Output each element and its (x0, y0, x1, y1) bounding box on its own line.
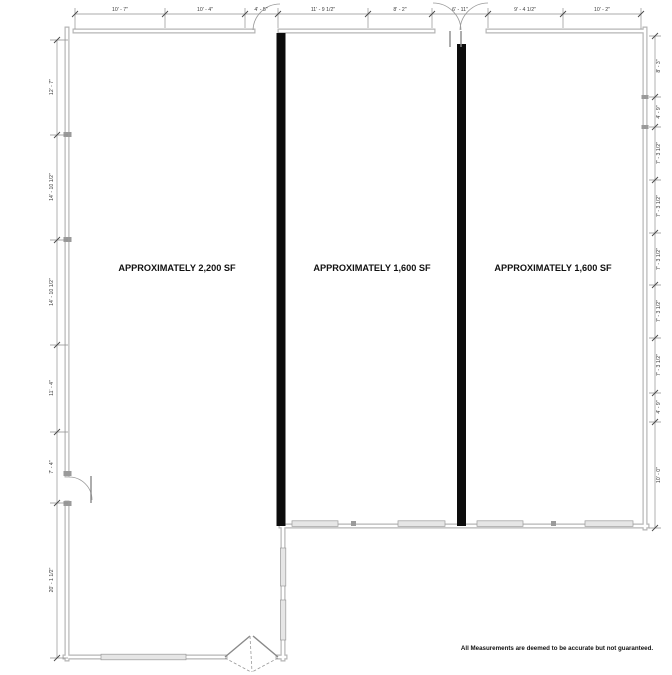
dimension-label: 8' - 3" (656, 59, 662, 72)
dimension-label: 4' - 9" (656, 105, 662, 118)
window (292, 521, 338, 527)
dimension-label: 20' - 1 1/2" (49, 567, 55, 592)
wall-mark (64, 132, 72, 137)
dimension-label: 8' - 2" (393, 7, 406, 13)
dimension-label: 7' - 3 1/2" (656, 195, 662, 217)
unit-labels: APPROXIMATELY 2,200 SF APPROXIMATELY 1,6… (118, 263, 612, 273)
dimension-label: 11' - 9 1/2" (311, 7, 336, 13)
dimension-labels-top: 10' - 7" 10' - 4" 4' - 5" 11' - 9 1/2" 8… (112, 7, 610, 13)
wall-mark (551, 521, 556, 526)
wall-mark (642, 95, 649, 99)
floorplan: 10' - 7" 10' - 4" 4' - 5" 11' - 9 1/2" 8… (0, 0, 672, 675)
window (280, 548, 285, 586)
dimension-label: 7' - 3 1/2" (656, 248, 662, 270)
unit-label-1600sf-middle: APPROXIMATELY 1,600 SF (313, 263, 431, 273)
dimension-label: 7' - 3 1/2" (656, 354, 662, 376)
dimension-label: 4' - 5" (254, 7, 267, 13)
window (477, 521, 523, 527)
dimension-label: 10' - 4" (197, 7, 213, 13)
window (398, 521, 445, 527)
unit-label-1600sf-right: APPROXIMATELY 1,600 SF (494, 263, 612, 273)
wall-mark (642, 125, 649, 129)
disclaimer-text: All Measurements are deemed to be accura… (461, 645, 653, 652)
dimension-label: 14' - 10 1/2" (49, 173, 55, 201)
wall-mark (64, 237, 72, 242)
dimension-labels-left: 12' - 7" 14' - 10 1/2" 14' - 10 1/2" 11'… (49, 79, 55, 593)
door-leaf (225, 636, 278, 657)
exterior-walls (65, 29, 647, 659)
unit-label-2200sf: APPROXIMATELY 2,200 SF (118, 263, 236, 273)
wall-mark (64, 501, 72, 506)
dimension-label: 7' - 3 1/2" (656, 300, 662, 322)
windows (64, 95, 649, 660)
demising-walls (277, 33, 467, 526)
dimension-label: 10' - 7" (112, 7, 128, 13)
dimension-label: 10' - 2" (594, 7, 610, 13)
dimension-label: 11' - 4" (49, 380, 55, 396)
dimension-label: 7' - 4" (49, 460, 55, 473)
dimension-label: 7' - 3 1/2" (656, 142, 662, 164)
wall-mark (64, 471, 72, 476)
window (585, 521, 633, 527)
dimension-label: 10' - 0" (656, 467, 662, 483)
dimension-label: 6' - 11" (452, 7, 468, 13)
demising-wall (457, 44, 466, 526)
window (280, 600, 285, 640)
dimension-label: 14' - 10 1/2" (49, 278, 55, 306)
dimension-lines (50, 8, 661, 661)
door-swing-arc (69, 477, 92, 500)
demising-wall (277, 33, 286, 526)
dimension-label: 9' - 4 1/2" (514, 7, 536, 13)
floorplan-page: 10' - 7" 10' - 4" 4' - 5" 11' - 9 1/2" 8… (0, 0, 672, 675)
wall-mark (351, 521, 356, 526)
dimension-label: 4' - 9" (656, 400, 662, 413)
door-swing-dashed (225, 636, 278, 672)
dimension-label: 12' - 7" (49, 79, 55, 95)
window (101, 654, 186, 660)
